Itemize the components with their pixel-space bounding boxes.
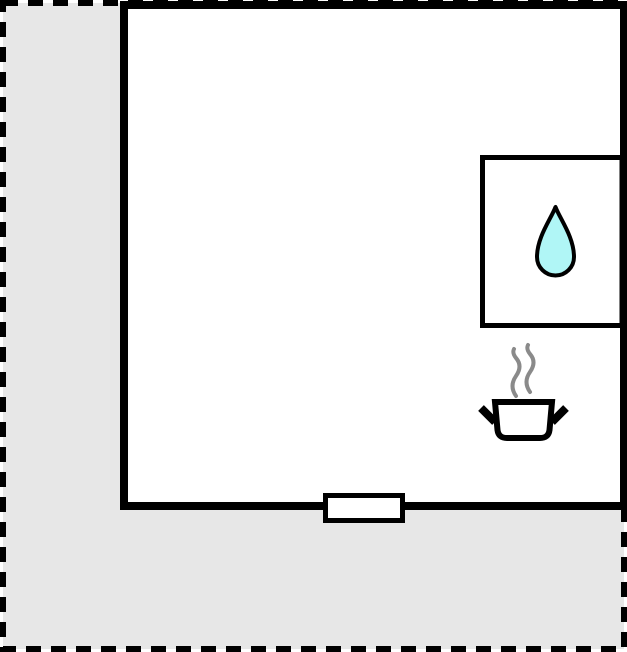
- floor-plan-canvas: [0, 0, 627, 652]
- floor-plan: [0, 0, 627, 652]
- wall-opening: [326, 496, 403, 521]
- pot-body: [495, 402, 552, 438]
